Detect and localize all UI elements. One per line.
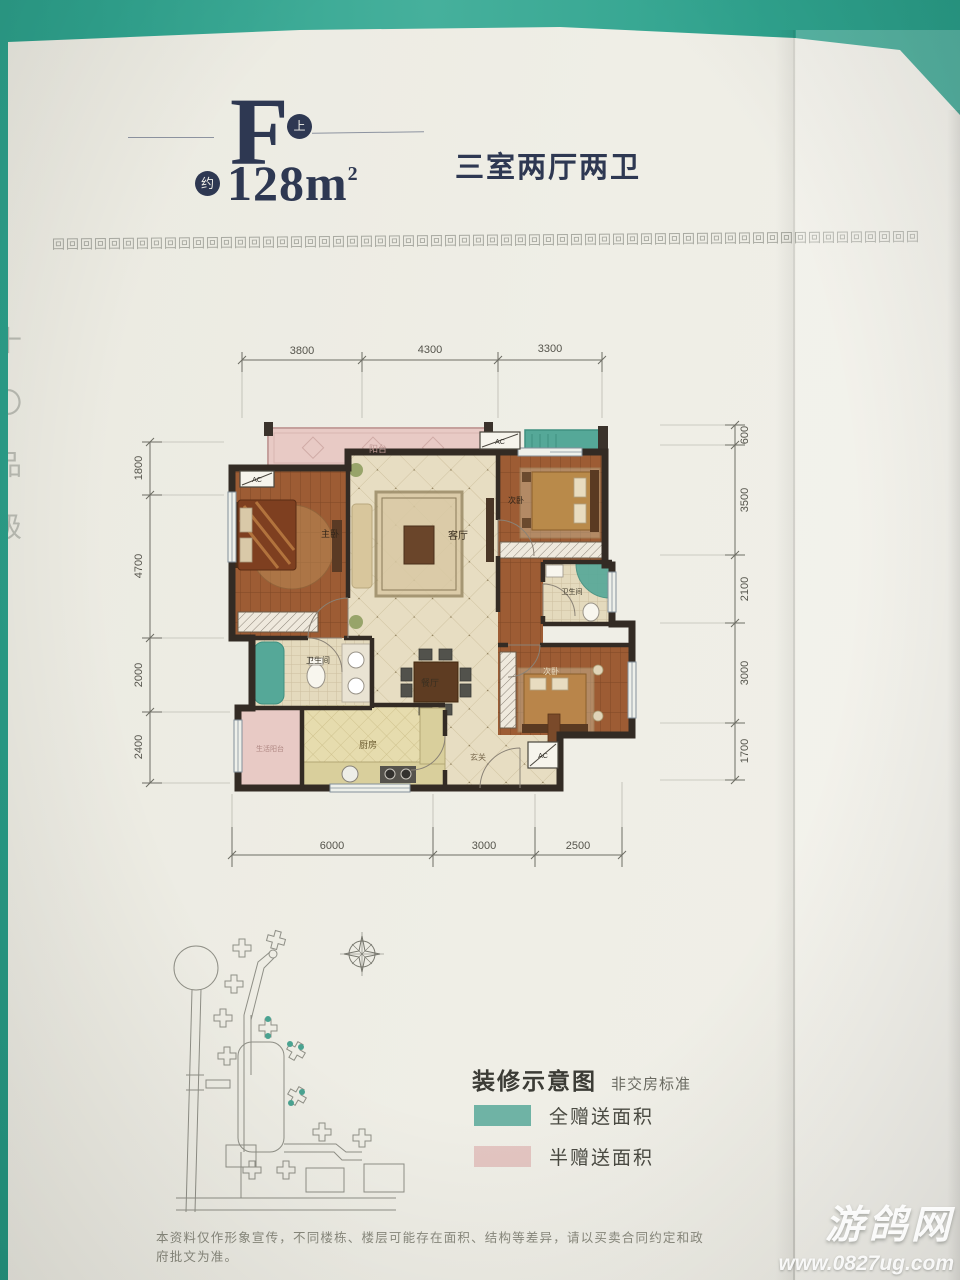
dim-left-2: 4700 xyxy=(133,554,145,578)
room-label-balcony: 阳台 xyxy=(369,443,387,454)
site-buildings xyxy=(214,929,404,1192)
room-label-bedroom2: 次卧 xyxy=(508,495,524,505)
page-edge-text: 十〇品级 xyxy=(0,326,26,574)
ac-label-1: AC xyxy=(252,477,262,484)
room-label-bedroom3: 次卧 xyxy=(543,666,559,676)
ac-label-2: AC xyxy=(495,439,505,446)
legend-item-half-gift: 半赠送面积 xyxy=(474,1143,654,1170)
dim-top-1: 3800 xyxy=(290,345,314,357)
room-label-kitchen: 厨房 xyxy=(359,739,377,750)
dim-right-2: 3500 xyxy=(739,488,751,512)
area-unit: m xyxy=(305,155,348,211)
site-highlight-dots xyxy=(265,1016,305,1106)
dim-left-4: 2400 xyxy=(133,735,145,759)
room-label-bath2: 卫生间 xyxy=(562,587,583,596)
legend-title: 装修示意图 xyxy=(472,1062,597,1096)
dim-bottom-3: 2500 xyxy=(566,840,590,852)
site-plan-sketch xyxy=(166,920,434,1218)
disclaimer-text: 本资料仅作形象宣传，不同楼栋、楼层可能存在面积、结构等差异，请以买卖合同约定和政… xyxy=(156,1227,716,1265)
half-gift-swatch xyxy=(474,1146,531,1167)
header-rule-right xyxy=(312,131,424,134)
legend-title-row: 装修示意图 非交房标准 xyxy=(472,1062,691,1096)
room-label-dining: 餐厅 xyxy=(421,677,439,688)
room-label-bath1: 卫生间 xyxy=(306,655,330,665)
area-exponent: 2 xyxy=(348,163,359,185)
floor-plan: 3800 4300 3300 6000 3000 2500 1800 4700 … xyxy=(120,322,770,887)
legend-note: 非交房标准 xyxy=(611,1073,691,1094)
room-label-service-balcony: 生活阳台 xyxy=(256,744,284,753)
layout-subtitle: 三室两厅两卫 xyxy=(455,144,641,186)
room-label-entry: 玄关 xyxy=(470,752,486,762)
room-label-living: 客厅 xyxy=(448,529,468,542)
header-rule-left xyxy=(128,137,214,138)
dim-right-1: 600 xyxy=(739,426,751,444)
area-value: 128m2 xyxy=(227,158,359,208)
area-row: 约 128m2 xyxy=(195,158,359,208)
room-label-master: 主卧 xyxy=(321,528,339,539)
dim-top-2: 4300 xyxy=(418,344,442,356)
half-gift-label: 半赠送面积 xyxy=(549,1143,654,1170)
ac-label-3: AC xyxy=(538,753,548,760)
dim-top-3: 3300 xyxy=(538,343,562,355)
dim-left-3: 2000 xyxy=(133,663,145,687)
compass-icon xyxy=(340,932,384,976)
dim-left-1: 1800 xyxy=(133,456,145,480)
approx-circle: 约 xyxy=(195,171,220,196)
dim-bottom-1: 6000 xyxy=(320,840,344,852)
dim-bottom-2: 3000 xyxy=(472,840,496,852)
brochure-page: 十〇品级 F 上 约 128m2 三室两厅两卫 回回回回回回回回回回回回回回回回… xyxy=(0,0,960,1280)
area-number: 128 xyxy=(227,155,305,211)
dim-right-3: 2100 xyxy=(739,577,751,601)
site-roads xyxy=(174,946,396,1212)
legend-item-full-gift: 全赠送面积 xyxy=(474,1102,654,1129)
full-gift-swatch xyxy=(474,1105,531,1126)
dim-right-4: 3000 xyxy=(739,661,751,685)
greek-key-border-pattern: 回回回回回回回回回回回回回回回回回回回回回回回回回回回回回回回回回回回回回回回回… xyxy=(52,227,934,255)
unit-badge: 上 xyxy=(287,114,312,139)
dim-right-5: 1700 xyxy=(739,739,751,763)
full-gift-label: 全赠送面积 xyxy=(549,1102,654,1129)
